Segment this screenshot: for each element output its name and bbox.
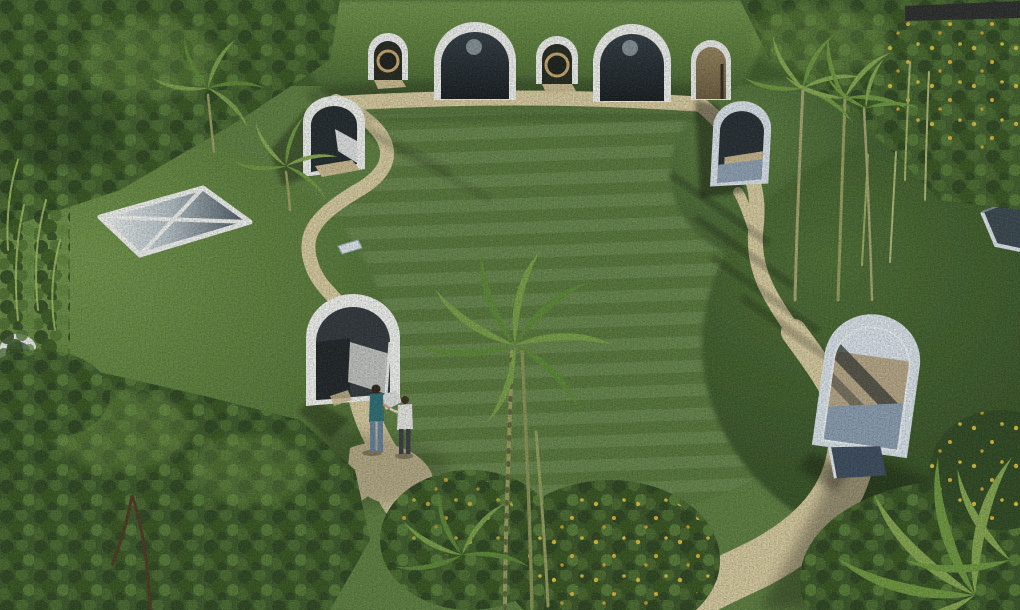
rendering-canvas	[0, 0, 1020, 610]
scene-illustration	[0, 0, 1020, 610]
texture-grain-light	[0, 0, 1020, 610]
